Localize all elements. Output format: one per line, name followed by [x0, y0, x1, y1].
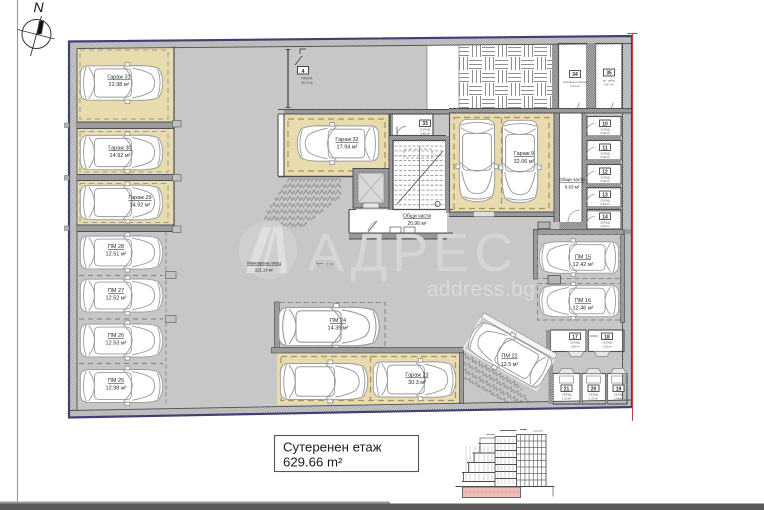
svg-text:Гараж 9: Гараж 9	[514, 151, 534, 157]
svg-text:32.06 м²: 32.06 м²	[514, 159, 535, 165]
svg-text:12.5 м²: 12.5 м²	[501, 362, 519, 368]
svg-text:12.98 м²: 12.98 м²	[106, 386, 127, 392]
svg-text:Общи части: Общи части	[403, 214, 431, 220]
svg-text:221.24 м²: 221.24 м²	[255, 268, 274, 273]
svg-text:1.92 м²: 1.92 м²	[562, 396, 571, 400]
svg-text:2.36 м²: 2.36 м²	[600, 179, 609, 183]
svg-text:ПМ 25: ПМ 25	[108, 378, 124, 384]
svg-text:22.98 м²: 22.98 м²	[109, 82, 130, 88]
svg-text:ПМ 26: ПМ 26	[108, 333, 124, 339]
svg-text:17: 17	[572, 334, 578, 340]
svg-text:ПМ 27: ПМ 27	[108, 288, 124, 294]
svg-text:ПМ 16: ПМ 16	[575, 298, 591, 304]
svg-text:8.83 м²: 8.83 м²	[565, 185, 580, 190]
svg-text:12.52 м²: 12.52 м²	[106, 296, 127, 302]
svg-text:Гараж 32: Гараж 32	[335, 137, 358, 143]
svg-text:629.66 m²: 629.66 m²	[283, 454, 343, 469]
svg-text:1.68 м²: 1.68 м²	[614, 396, 623, 400]
svg-text:14.92 м²: 14.92 м²	[130, 203, 151, 209]
svg-text:1.80 м²: 1.80 м²	[570, 344, 579, 348]
svg-text:35: 35	[606, 71, 612, 77]
svg-text:21: 21	[564, 386, 570, 392]
svg-text:Гараж 29: Гараж 29	[128, 195, 151, 201]
svg-text:Гараж 23: Гараж 23	[405, 373, 428, 379]
svg-text:ПМ 24: ПМ 24	[330, 318, 346, 324]
svg-text:6.41 м²: 6.41 м²	[570, 84, 579, 88]
svg-text:34: 34	[572, 72, 578, 78]
svg-text:1.32 м²: 1.32 м²	[589, 396, 598, 400]
svg-text:6.67 м²: 6.67 м²	[604, 83, 613, 87]
svg-text:address.bg: address.bg	[427, 278, 536, 301]
svg-text:Маневрена площ: Маневрена площ	[247, 261, 281, 266]
svg-text:30.3 м²: 30.3 м²	[408, 380, 426, 386]
svg-text:12.51 м²: 12.51 м²	[106, 252, 127, 258]
svg-text:РАМПА: РАМПА	[301, 77, 313, 81]
svg-text:14.39 м²: 14.39 м²	[328, 326, 349, 332]
svg-text:Гараж 31: Гараж 31	[107, 75, 130, 81]
svg-text:2.36 м²: 2.36 м²	[600, 202, 609, 206]
svg-text:2.36 м²: 2.36 м²	[600, 155, 609, 159]
svg-text:12.53 м²: 12.53 м²	[106, 341, 127, 347]
svg-text:Сутеренен етаж: Сутеренен етаж	[283, 439, 382, 454]
svg-text:Общи части: Общи части	[559, 177, 585, 182]
svg-text:2.5%: 2.5%	[326, 263, 333, 267]
svg-text:1.20 м²: 1.20 м²	[602, 344, 611, 348]
svg-text:ПМ 15: ПМ 15	[575, 255, 591, 261]
svg-text:33.71 м²: 33.71 м²	[301, 81, 313, 85]
svg-text:3.48 м²: 3.48 м²	[420, 131, 430, 135]
svg-text:12.46 м²: 12.46 м²	[573, 306, 594, 312]
svg-text:2.36 м²: 2.36 м²	[600, 224, 609, 228]
svg-text:Гараж 30: Гараж 30	[108, 146, 131, 152]
svg-text:20: 20	[591, 386, 597, 392]
svg-text:12.42 м²: 12.42 м²	[573, 262, 594, 268]
svg-text:2.36 м²: 2.36 м²	[600, 131, 609, 135]
svg-text:АДРЕС: АДРЕС	[308, 223, 518, 283]
svg-text:19: 19	[616, 386, 622, 392]
svg-text:33: 33	[422, 121, 428, 127]
svg-text:14.92 м²: 14.92 м²	[110, 153, 131, 159]
svg-text:17.94 м²: 17.94 м²	[337, 145, 358, 151]
svg-text:18: 18	[604, 334, 610, 340]
svg-text:ПМ 28: ПМ 28	[108, 244, 124, 250]
svg-text:N: N	[33, 0, 44, 15]
svg-text:ПМ 22: ПМ 22	[501, 354, 517, 360]
